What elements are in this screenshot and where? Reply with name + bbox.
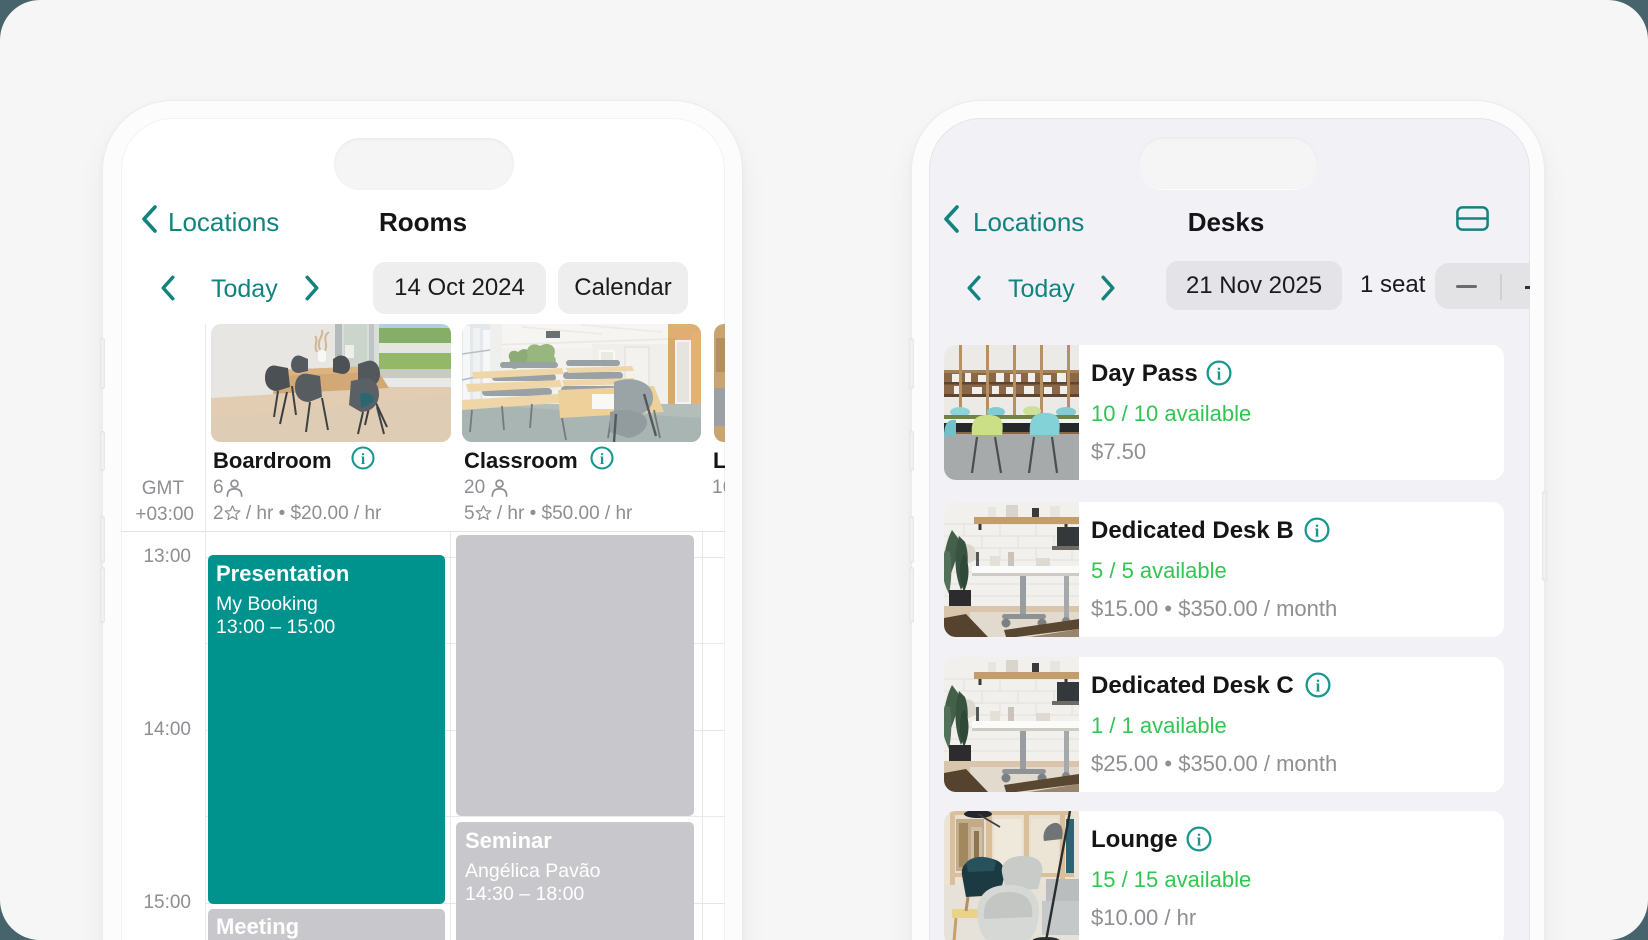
svg-text:i: i [1217,365,1222,384]
svg-text:i: i [361,451,366,468]
svg-text:i: i [1315,522,1320,541]
svg-text:i: i [1197,831,1202,850]
svg-text:i: i [600,451,605,468]
svg-text:i: i [1316,677,1321,696]
